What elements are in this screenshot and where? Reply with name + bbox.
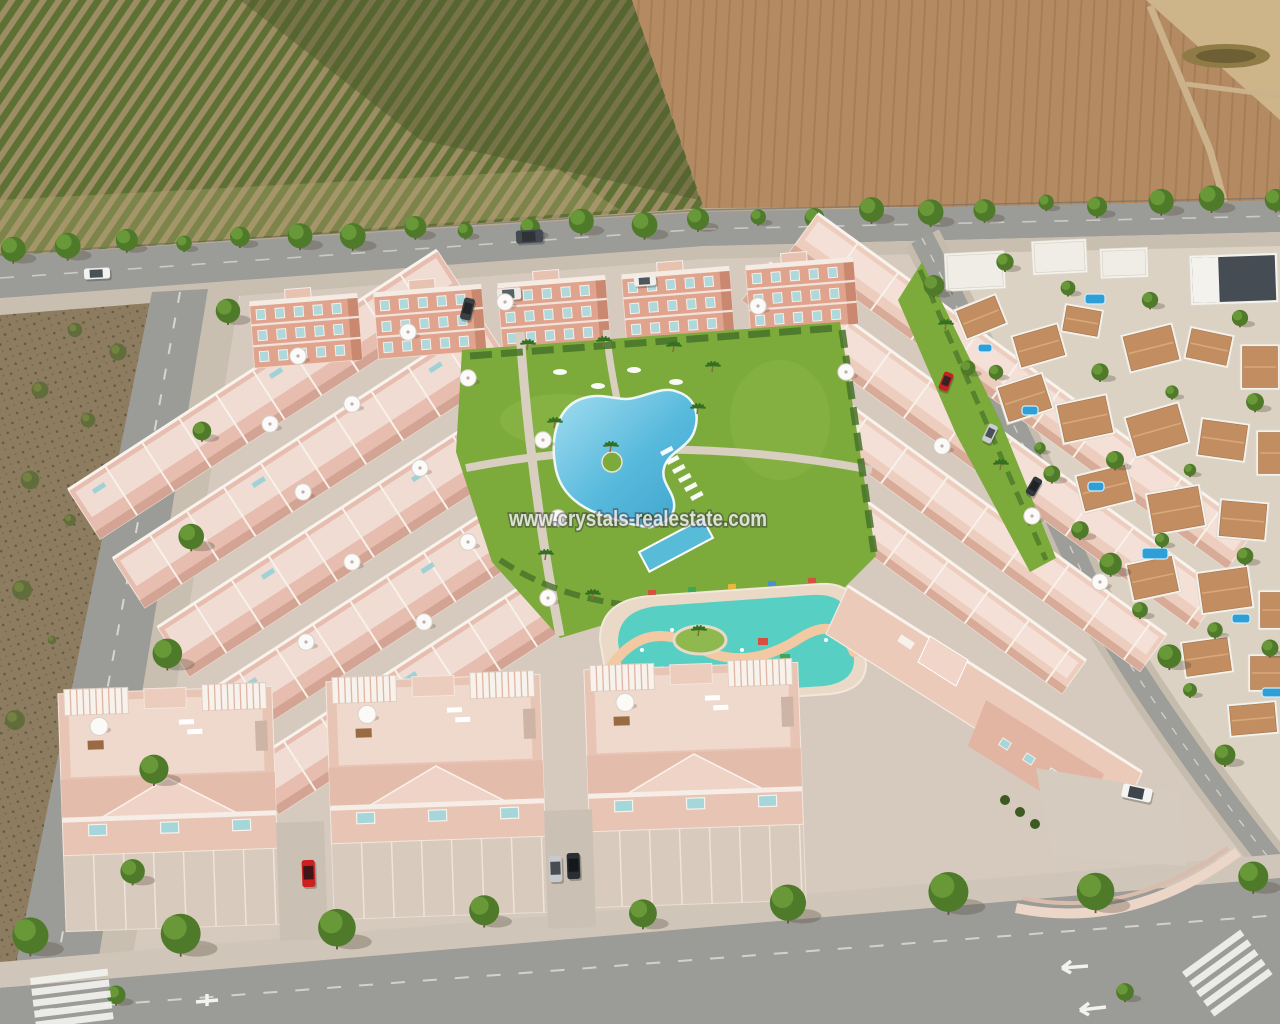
person [740,648,744,652]
lawn-lounger [627,367,641,373]
white-car-apartments [634,275,658,289]
aerial-render-image: www.crystals-realestate.com [0,0,1280,1024]
render-scene: www.crystals-realestate.com [0,0,1280,1024]
villa-house [1258,590,1280,630]
townhouse-row-bottom [58,658,806,940]
play-equipment [758,638,768,645]
villa-house [1060,303,1105,339]
villa-house [1216,498,1269,542]
villa-house [1240,344,1280,390]
play-fence [688,587,696,593]
person [670,628,674,632]
villa-pool [1262,688,1280,697]
villa-house [1256,430,1280,476]
hedge-bush [1030,819,1040,829]
play-fence [648,590,656,596]
lawn-lounger [591,383,605,389]
twin-townhouse [58,682,280,931]
villa-house [1195,417,1250,464]
villa-pool [978,344,992,352]
villa-house [1180,635,1235,680]
villa-house [1248,654,1280,692]
play-fence [768,581,776,587]
red-car-driveway [302,860,318,889]
villa-pool [1142,548,1168,559]
person [640,648,644,652]
twin-townhouse [326,670,548,919]
lawn-lounger [669,379,683,385]
black-car-driveway [567,853,582,881]
hay-shrub-core [1196,49,1256,63]
twin-townhouse [584,658,806,907]
hedge-bush [1000,795,1010,805]
villa-house [1195,564,1255,615]
villa-house [1145,483,1208,536]
watermark-text: www.crystals-realestate.com [508,506,767,531]
lawn-lounger [553,369,567,375]
villa-pool [1232,614,1250,623]
villa-pool [1088,482,1104,491]
pool-island [602,452,622,472]
villa-house [1227,700,1280,738]
villa-pool [1022,406,1038,415]
villa-house [1099,247,1148,279]
villa-house [1031,239,1088,276]
silver-car-driveway [549,856,564,884]
villa-pool [1085,294,1105,304]
villa-house [944,250,1006,291]
villa-house [1189,252,1279,305]
hedge-bush [1015,807,1025,817]
person [824,638,828,642]
play-fence [728,584,736,590]
dark-van-road [516,229,545,245]
play-fence [808,578,816,584]
white-car-road [84,267,112,281]
